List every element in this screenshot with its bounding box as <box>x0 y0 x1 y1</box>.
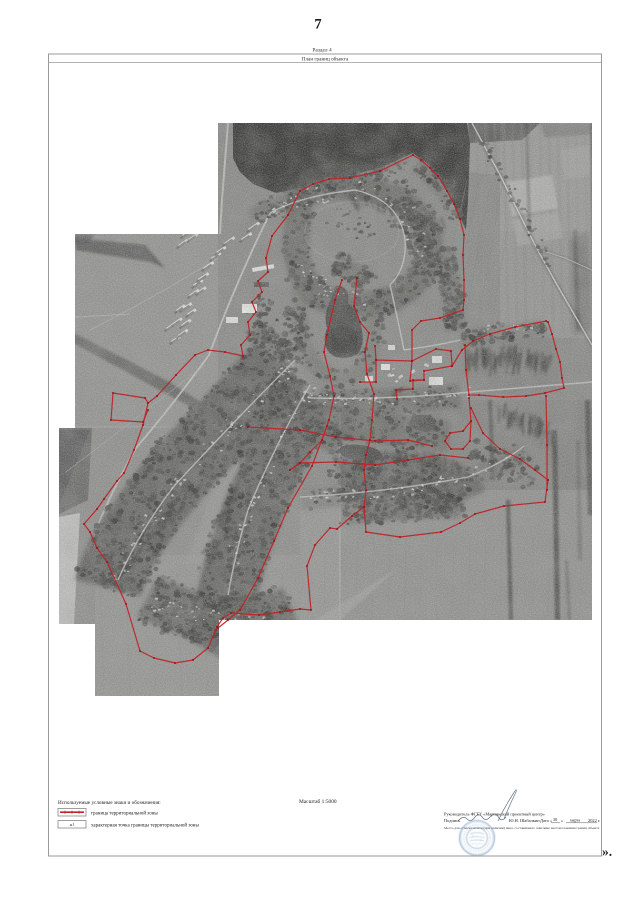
svg-text:Раздел 4: Раздел 4 <box>312 48 332 54</box>
svg-text:марта: марта <box>570 818 580 823</box>
svg-text:План границ объекта: План границ объекта <box>302 55 349 62</box>
svg-text:Масштаб 1:5000: Масштаб 1:5000 <box>299 798 337 805</box>
svg-text:Используемые условные знаки и: Используемые условные знаки и обозначени… <box>58 799 161 806</box>
svg-text:граница территориальной зоны: граница территориальной зоны <box>91 811 158 816</box>
svg-text:Ю.Н. Шабалкин: Ю.Н. Шабалкин <box>509 818 540 823</box>
svg-text:».: ». <box>602 844 612 859</box>
svg-text:2022 г.: 2022 г. <box>588 818 600 823</box>
svg-text:н1: н1 <box>70 822 75 827</box>
svg-text:30: 30 <box>553 817 557 822</box>
svg-text:»: » <box>561 818 563 823</box>
svg-text:характерная точка границы терр: характерная точка границы территориально… <box>91 823 199 828</box>
svg-text:Дата «: Дата « <box>540 818 553 823</box>
svg-text:Подпись: Подпись <box>444 818 460 823</box>
svg-text:7: 7 <box>314 17 321 33</box>
